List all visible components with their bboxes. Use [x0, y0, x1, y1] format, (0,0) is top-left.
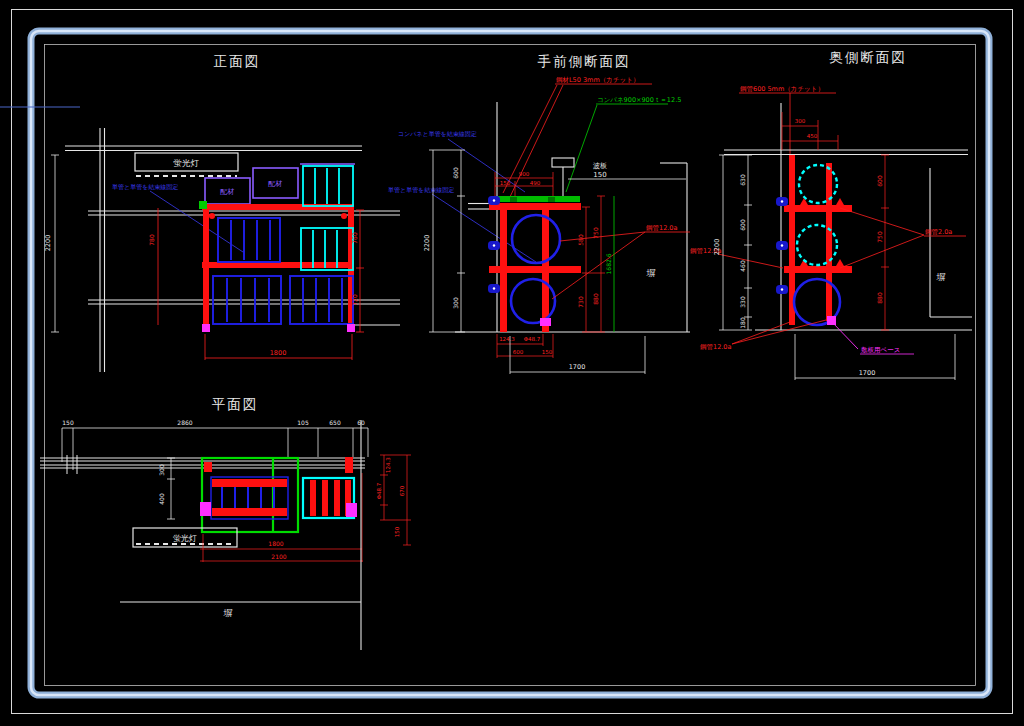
far-structure-lines — [724, 103, 972, 330]
fluorescent-label: 蛍光灯 — [173, 158, 199, 168]
dim-label: Φ48.7 — [524, 336, 541, 342]
dim-label: 1800 — [270, 349, 287, 357]
dim-label: 150 — [542, 349, 553, 355]
dim-label: 600 — [513, 349, 524, 355]
drawing-frame — [0, 10, 1013, 714]
dim-label: 650 — [329, 419, 341, 426]
pipe-note-leader — [552, 232, 690, 299]
dim-label: 2100 — [271, 553, 286, 560]
dim-label: 720 — [351, 294, 358, 306]
plan-dim-left — [167, 458, 175, 519]
dim-label: 150 — [500, 180, 511, 186]
steel-rails — [202, 204, 354, 332]
steel-note: 鋼管600 5mm（カチット） — [740, 85, 824, 93]
base-plate — [202, 324, 210, 332]
dim-label: 1700 — [569, 363, 586, 371]
front-dim-right — [356, 210, 364, 332]
near-structure-lines — [455, 102, 690, 332]
far-dim-top — [782, 112, 838, 150]
plywood-plank — [494, 196, 580, 202]
dim-label: 2200 — [44, 235, 52, 252]
clamp-icons — [488, 196, 500, 293]
dim-label: 150 — [62, 419, 74, 426]
base-note: 敷板用ベース — [861, 346, 900, 354]
far-dim-left — [719, 155, 752, 330]
base-plate — [347, 324, 355, 332]
wall-label: 塀 — [646, 268, 656, 278]
wall-label: 塀 — [223, 608, 233, 618]
steel-note: 鋼材L50 3mm（カチット） — [556, 76, 639, 84]
cad-drawing-canvas: 正面図 蛍光灯 単管と単管を結束線固定 配材 配材 — [0, 0, 1024, 726]
far-section-view: 奥側断面図 鋼管600 5mm（カチット） 塀 300 450 — [690, 49, 972, 380]
dim-label: 600 — [739, 219, 746, 231]
near-dim-right — [582, 196, 605, 332]
dim-label: 1682.6 — [605, 253, 612, 274]
green-block — [199, 201, 207, 209]
dim-label: 780 — [148, 234, 155, 246]
near-steel-frame — [489, 203, 581, 332]
red-block — [204, 462, 212, 472]
pipe-note-leader — [732, 320, 826, 344]
dim-label: 460 — [739, 260, 746, 272]
dim-label: 1800 — [268, 540, 283, 547]
base-plate — [200, 502, 211, 516]
dim-label: 880 — [876, 292, 883, 304]
dim-label: 2200 — [713, 239, 721, 256]
dim-label: 300 — [795, 118, 806, 124]
leader-line — [718, 254, 783, 268]
dim-label: 450 — [807, 133, 818, 139]
dim-label: 760 — [351, 232, 358, 244]
dim-label: 300 — [158, 464, 165, 476]
material-box-label: 配材 — [268, 180, 282, 188]
dim-label: 400 — [158, 493, 165, 505]
dim-label: 600 — [876, 175, 883, 187]
base-plate — [540, 318, 551, 326]
top-dim-label: 波板 — [593, 162, 607, 170]
pipe-note-leader — [840, 208, 966, 268]
plank-joint — [548, 197, 555, 202]
red-block — [345, 457, 353, 473]
dim-label: 180 — [739, 317, 746, 329]
pipe-note-bottom: 鋼管12.0a — [700, 343, 731, 351]
leader-line — [832, 322, 858, 349]
material-box-label: 配材 — [220, 188, 234, 196]
fluorescent-label: 蛍光灯 — [173, 534, 197, 543]
dim-label: 105 — [297, 419, 309, 426]
dim-label: 330 — [739, 296, 746, 308]
base-plate — [346, 503, 357, 517]
panel-note: コンパネ900×900ｔ＝12.5 — [597, 96, 681, 104]
dim-label: 150 — [394, 526, 400, 537]
dim-label: 124.3 — [499, 336, 515, 342]
base-plate — [827, 316, 836, 325]
tie-note-lower: 単管と単管を結束線固定 — [388, 186, 454, 194]
front-view: 正面図 蛍光灯 単管と単管を結束線固定 配材 配材 — [44, 53, 400, 372]
dim-label: 2200 — [423, 235, 431, 252]
dim-label: Φ48.7 — [376, 482, 382, 499]
dim-label: 490 — [530, 180, 541, 186]
dim-label: 124.3 — [385, 457, 391, 473]
near-section-title: 手前側断面図 — [538, 53, 631, 69]
plan-view: 平面図 150 2860 105 650 60 — [40, 396, 411, 650]
blue-grill-mid — [218, 218, 280, 262]
top-dim-value: 150 — [593, 171, 606, 179]
pipe-note-right: 鋼管2.0a — [925, 228, 952, 236]
plank-joint — [510, 197, 517, 202]
cyan-grill-top — [303, 166, 353, 206]
pipe-section-circle — [512, 215, 560, 263]
green-enclosure — [202, 458, 298, 532]
plan-boundary-lines — [120, 420, 361, 650]
dim-label: 1700 — [859, 369, 876, 377]
dim-label: 600 — [452, 167, 459, 179]
far-section-title: 奥側断面図 — [829, 49, 907, 65]
front-tie-note: 単管と単管を結束線固定 — [112, 183, 178, 191]
front-dim-left — [51, 155, 59, 332]
near-dim-left — [429, 150, 465, 332]
leader-line — [448, 139, 525, 192]
dim-label: 2860 — [177, 419, 192, 426]
dim-label: 670 — [399, 485, 405, 496]
plan-dim-top — [62, 428, 368, 470]
plan-view-title: 平面図 — [212, 396, 259, 412]
dim-label: 750 — [876, 231, 883, 243]
front-view-title: 正面図 — [214, 53, 261, 69]
dim-label: 750 — [592, 227, 599, 239]
dim-label: 630 — [739, 174, 746, 186]
dim-label: 300 — [452, 297, 459, 309]
near-section-view: 手前側断面図 鋼材L50 3mm（カチット） コンパネ900×900ｔ＝12.5… — [388, 53, 690, 374]
wall-label: 塀 — [936, 272, 946, 282]
pipe-note: 鋼管12.0a — [646, 224, 677, 232]
leader-line — [150, 191, 243, 252]
steel-note-leader — [739, 93, 836, 157]
dim-label: 900 — [519, 171, 530, 177]
dim-label: 730 — [577, 296, 584, 308]
dim-label: 880 — [592, 293, 599, 305]
blue-cage-plan — [211, 477, 288, 519]
tie-note-upper: コンパネと単管を結束線固定 — [398, 130, 477, 138]
dim-label: 580 — [577, 234, 584, 246]
